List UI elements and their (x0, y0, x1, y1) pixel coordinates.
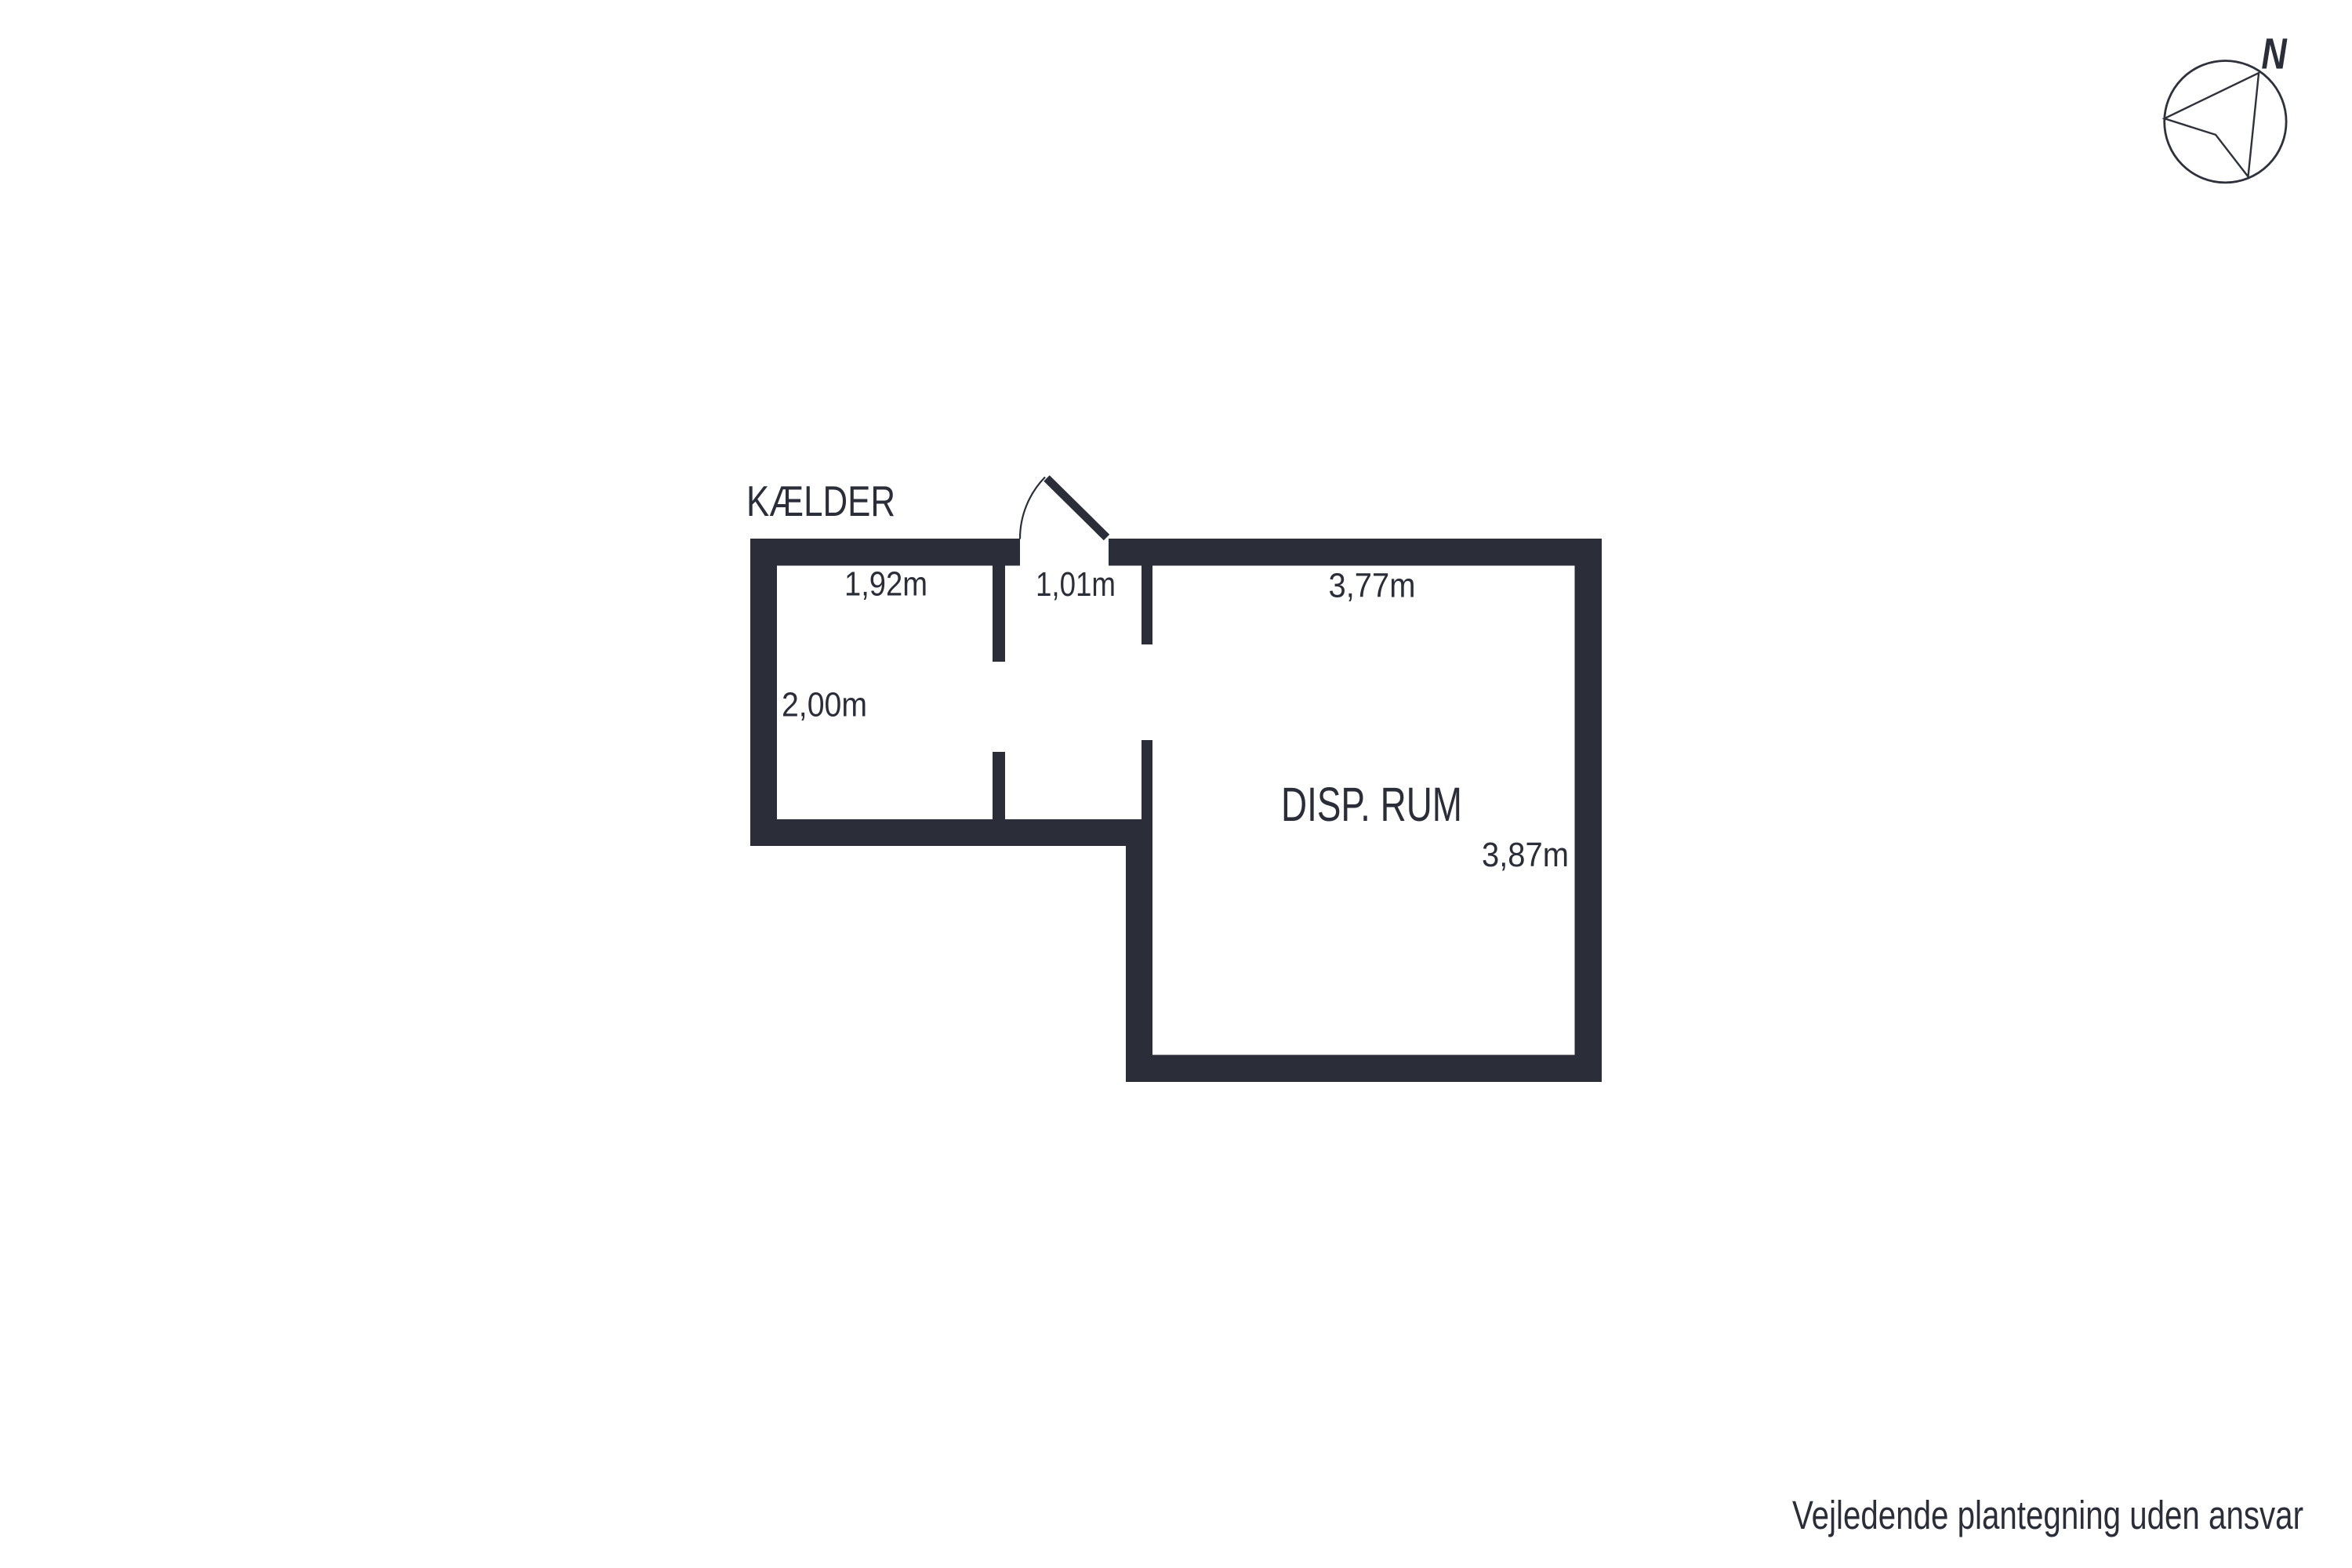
svg-text:1,01m: 1,01m (1036, 566, 1116, 604)
svg-text:1,92m: 1,92m (844, 566, 927, 604)
svg-text:Vejledende plantegning uden an: Vejledende plantegning uden ansvar (1792, 1493, 2303, 1537)
svg-text:KÆLDER: KÆLDER (746, 477, 895, 525)
svg-text:2,00m: 2,00m (782, 687, 867, 724)
svg-text:3,87m: 3,87m (1482, 837, 1569, 874)
svg-text:DISP. RUM: DISP. RUM (1281, 778, 1462, 831)
svg-text:N: N (2261, 29, 2288, 78)
svg-text:3,77m: 3,77m (1329, 568, 1416, 605)
